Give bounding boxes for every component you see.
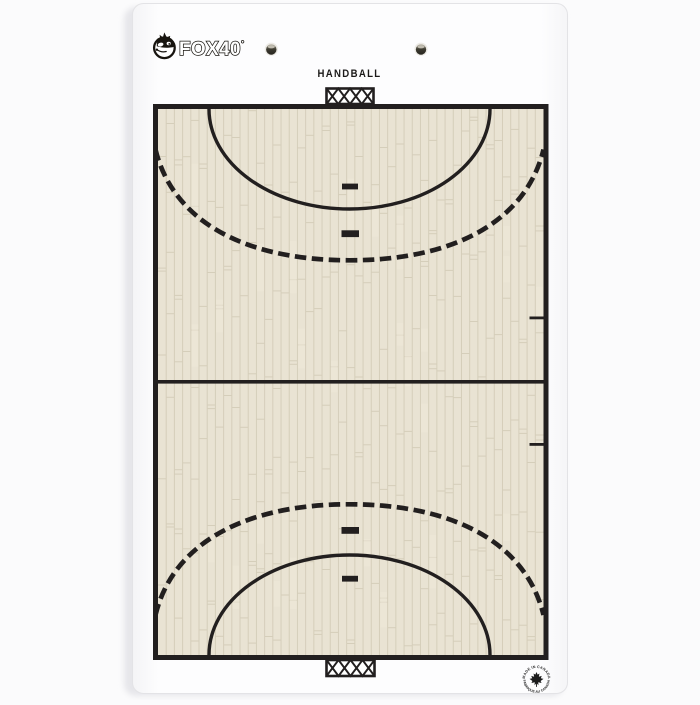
- svg-text:FOX40: FOX40: [179, 38, 241, 60]
- svg-text:HANDBALL: HANDBALL: [318, 68, 382, 80]
